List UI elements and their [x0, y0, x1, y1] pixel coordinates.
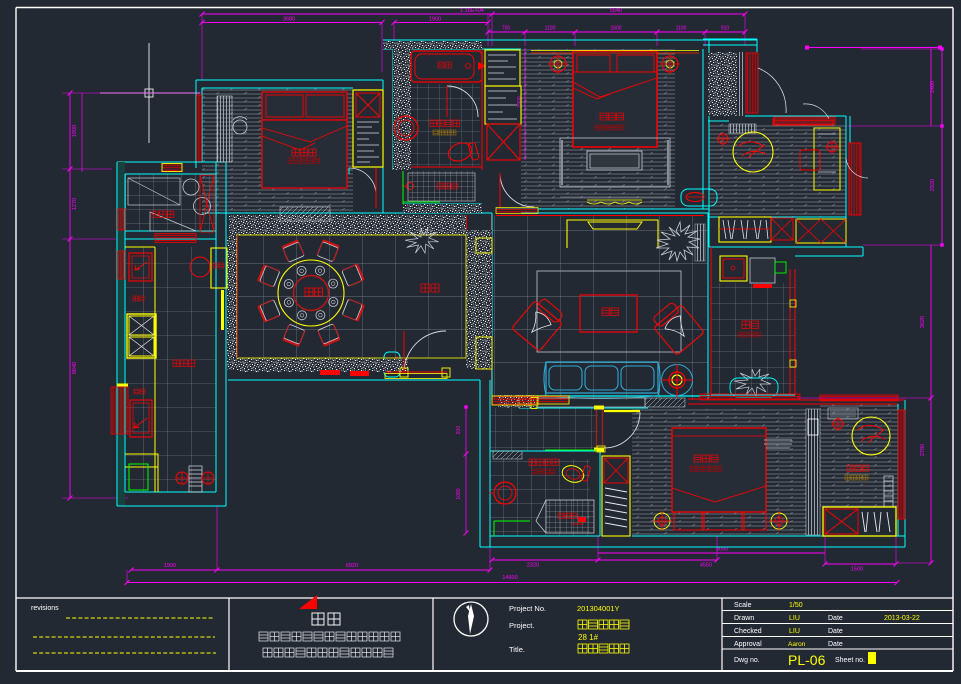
svg-text:1900: 1900 — [164, 563, 176, 569]
svg-text:Date: Date — [828, 628, 843, 635]
svg-text:2320: 2320 — [527, 563, 539, 569]
svg-text:Project No.: Project No. — [509, 604, 546, 613]
svg-text:Aaron: Aaron — [788, 641, 806, 648]
svg-text:3680: 3680 — [283, 17, 295, 23]
svg-text:Date: Date — [828, 641, 843, 648]
svg-text:910: 910 — [456, 426, 462, 435]
svg-text:8640: 8640 — [72, 362, 78, 374]
svg-text:1500: 1500 — [851, 567, 863, 573]
svg-text:910: 910 — [721, 26, 730, 32]
svg-text:1100: 1100 — [545, 26, 556, 32]
svg-text:Title.: Title. — [509, 645, 525, 654]
svg-text:1100: 1100 — [676, 26, 687, 32]
svg-text:1080: 1080 — [456, 488, 462, 499]
svg-text:Sheet no.: Sheet no. — [835, 657, 865, 664]
svg-text:3620: 3620 — [920, 316, 926, 328]
svg-text:1900: 1900 — [72, 125, 78, 137]
svg-text:revisions: revisions — [31, 605, 59, 612]
svg-text:2780: 2780 — [920, 444, 926, 456]
svg-text:1.16E+04: 1.16E+04 — [460, 8, 484, 14]
svg-text:Scale: Scale — [734, 602, 752, 609]
svg-text:2920: 2920 — [930, 179, 936, 191]
svg-text:PL-06: PL-06 — [788, 652, 826, 668]
svg-text:Date: Date — [828, 615, 843, 622]
svg-text:4550: 4550 — [700, 563, 712, 569]
svg-text:2013-03-22: 2013-03-22 — [884, 615, 920, 622]
svg-text:14600: 14600 — [502, 575, 517, 581]
svg-text:201304001Y: 201304001Y — [577, 604, 620, 613]
svg-text:Checked: Checked — [734, 628, 762, 635]
svg-text:28 1#: 28 1# — [578, 633, 599, 642]
svg-text:1900: 1900 — [429, 17, 441, 23]
svg-text:LIU: LIU — [789, 628, 800, 635]
svg-text:1/50: 1/50 — [789, 602, 803, 609]
svg-text:Drawn: Drawn — [734, 615, 754, 622]
svg-text:Project.: Project. — [509, 621, 534, 630]
svg-text:6920: 6920 — [346, 563, 358, 569]
svg-text:Dwg no.: Dwg no. — [734, 657, 760, 664]
svg-text:1270: 1270 — [72, 198, 78, 210]
svg-text:700: 700 — [502, 26, 511, 32]
svg-text:1400: 1400 — [930, 81, 936, 93]
svg-text:LIU: LIU — [789, 615, 800, 622]
svg-text:5540: 5540 — [610, 8, 622, 14]
svg-text:Approval: Approval — [734, 641, 762, 648]
svg-text:1600: 1600 — [610, 26, 621, 32]
